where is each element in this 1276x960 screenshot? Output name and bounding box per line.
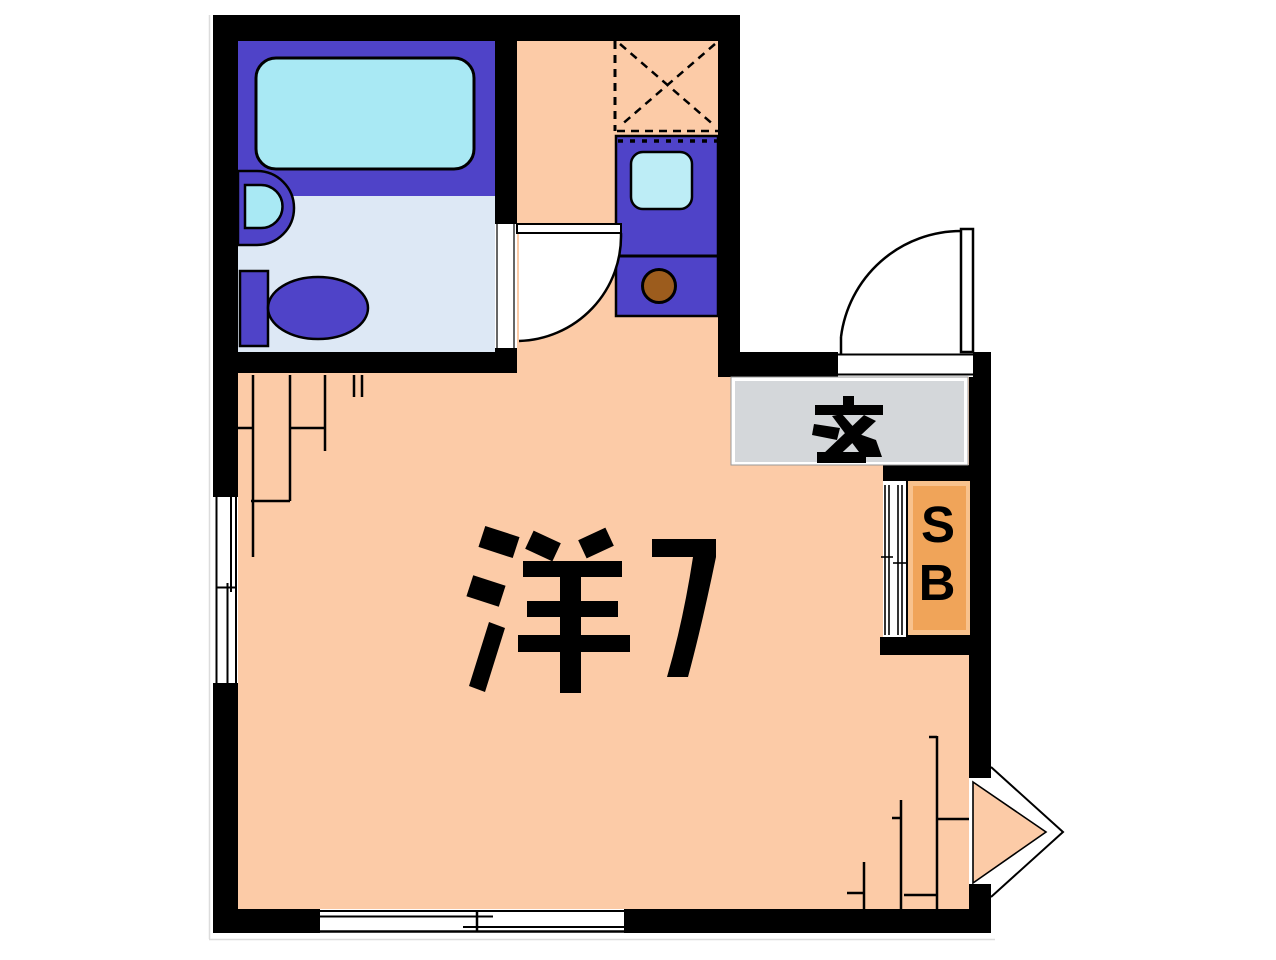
- svg-text:B: B: [919, 554, 956, 611]
- svg-text:S: S: [921, 496, 955, 553]
